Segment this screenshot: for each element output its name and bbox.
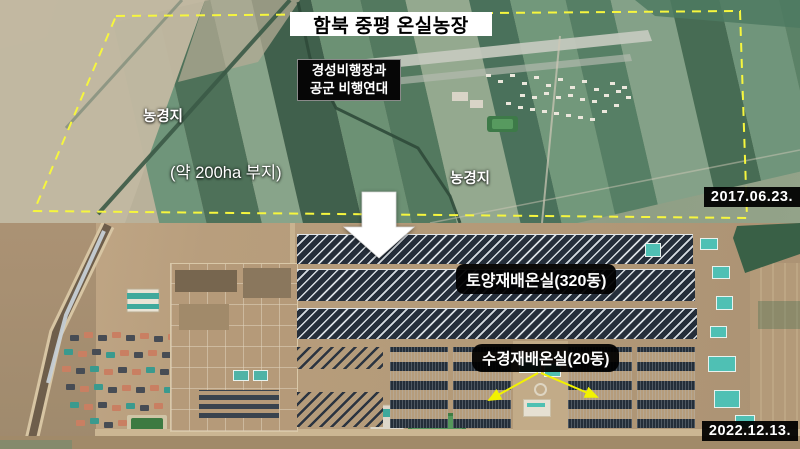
satellite-image-2017: 함북 중평 온실농장 경성비행장과 공군 비행연대 농경지 농경지 (약 200… xyxy=(0,0,800,223)
page-title: 함북 중평 온실농장 xyxy=(290,12,492,36)
farmland-label-right: 농경지 xyxy=(450,167,490,188)
airfield-label-line1: 경성비행장과 xyxy=(298,62,400,80)
airfield-label-line2: 공군 비행연대 xyxy=(298,80,400,98)
greenhouse-farm-infographic: 함북 중평 온실농장 경성비행장과 공군 비행연대 농경지 농경지 (약 200… xyxy=(0,0,800,449)
date-stamp-2017: 2017.06.23. xyxy=(704,187,800,207)
airfield-label: 경성비행장과 공군 비행연대 xyxy=(297,59,401,101)
site-area-label: (약 200ha 부지) xyxy=(170,159,282,183)
date-stamp-2022: 2022.12.13. xyxy=(702,421,798,441)
satellite-image-2022: 토양재배온실(320동) 수경재배온실(20동) 2022.12.13. xyxy=(0,223,800,449)
farmland-label-left: 농경지 xyxy=(143,105,183,126)
annotation-arrows xyxy=(0,223,800,449)
